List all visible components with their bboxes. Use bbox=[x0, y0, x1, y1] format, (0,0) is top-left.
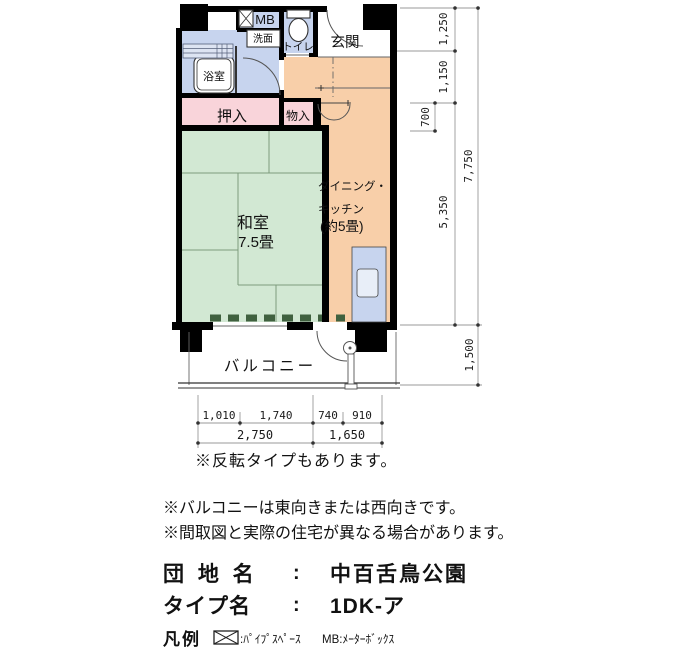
toilet-tank bbox=[287, 10, 310, 18]
label-dk-2: キッチン bbox=[318, 203, 364, 216]
pillar-top-left bbox=[180, 4, 208, 31]
note-disclaimer: ※間取図と実際の住宅が異なる場合があります。 bbox=[163, 524, 513, 542]
type-name-value: 1DK-ア bbox=[330, 595, 405, 618]
kitchen-sink bbox=[357, 269, 378, 297]
dim-1740: 1,740 bbox=[259, 409, 292, 422]
label-mb: MB bbox=[255, 12, 275, 27]
estate-name-value: 中百舌鳥公園 bbox=[330, 562, 468, 586]
dim-1650: 1,650 bbox=[329, 428, 365, 442]
dimensions-bottom: 1,010 1,740 740 910 2,750 1,650 bbox=[196, 395, 384, 448]
dim-7750: 7,750 bbox=[462, 149, 475, 182]
label-washstand: 洗面 bbox=[253, 33, 273, 45]
label-monoire: 物入 bbox=[286, 109, 310, 123]
pillar-bottom-right bbox=[355, 330, 387, 352]
label-dk-3: (約5畳) bbox=[320, 219, 364, 234]
notes-block: ※反転タイプもあります。 ※バルコニーは東向きまたは西向きです。 ※間取図と実際… bbox=[163, 452, 513, 542]
wall-bottom-right bbox=[347, 322, 397, 330]
dim-1250: 1,250 bbox=[437, 12, 450, 45]
legend-pipe-space: :ﾊﾟｲﾌﾟｽﾍﾟｰｽ bbox=[240, 633, 301, 646]
label-dk-1: ダイニング・ bbox=[318, 179, 387, 193]
label-balcony: バルコニー bbox=[224, 358, 316, 375]
dim-1010: 1,010 bbox=[202, 409, 235, 422]
wall-bottom-mid bbox=[287, 322, 313, 330]
type-colon: : bbox=[293, 594, 300, 616]
dimensions-right: 1,250 1,150 700 5,350 7,750 1,500 bbox=[397, 6, 482, 387]
floor-plan-drawing: MB 洗面 トイレ 玄関 浴室 押入 物入 和室 7.5畳 ダイニング・ キッチ… bbox=[0, 0, 700, 650]
wall-right bbox=[390, 28, 397, 322]
floor-plan-page: MB 洗面 トイレ 玄関 浴室 押入 物入 和室 7.5畳 ダイニング・ キッチ… bbox=[0, 0, 700, 650]
label-washitsu: 和室 bbox=[237, 214, 269, 232]
laundry-shelf bbox=[183, 44, 233, 58]
dim-910: 910 bbox=[352, 409, 372, 422]
dim-700: 700 bbox=[419, 107, 432, 127]
wall-washroom-oshiire bbox=[176, 93, 283, 98]
label-washitsu-size: 7.5畳 bbox=[238, 234, 274, 251]
property-info: 団 地 名 : 中百舌鳥公園 タイプ名 : 1DK-ア bbox=[163, 562, 468, 618]
balcony-partition bbox=[348, 354, 354, 385]
wall-bottom-left bbox=[172, 322, 213, 330]
dim-2750: 2,750 bbox=[237, 428, 273, 442]
legend-meter-box: MB:ﾒｰﾀｰﾎﾞｯｸｽ bbox=[322, 633, 394, 646]
balcony-door-arc bbox=[317, 331, 347, 361]
label-oshiire: 押入 bbox=[217, 108, 247, 125]
toilet-bowl bbox=[289, 19, 308, 42]
label-toilet: トイレ bbox=[282, 41, 314, 53]
wall-left bbox=[176, 28, 182, 322]
note-balcony-facing: ※バルコニーは東向きまたは西向きです。 bbox=[163, 499, 465, 517]
dim-5350: 5,350 bbox=[437, 195, 450, 228]
pillar-bottom-left bbox=[180, 330, 202, 352]
note-reverse-type: ※反転タイプもあります。 bbox=[195, 452, 397, 470]
label-bath: 浴室 bbox=[203, 69, 225, 83]
estate-colon: : bbox=[293, 562, 300, 584]
dim-1500: 1,500 bbox=[463, 338, 476, 371]
dim-740: 740 bbox=[318, 409, 338, 422]
type-name-label: タイプ名 bbox=[163, 594, 251, 618]
wall-oshiire-washitsu bbox=[176, 125, 329, 131]
legend: 凡例 :ﾊﾟｲﾌﾟｽﾍﾟｰｽ MB:ﾒｰﾀｰﾎﾞｯｸｽ bbox=[163, 629, 394, 649]
pillar-top-right bbox=[363, 4, 397, 30]
legend-title: 凡例 bbox=[163, 629, 201, 649]
estate-name-label: 団 地 名 bbox=[163, 562, 258, 586]
label-entrance: 玄関 bbox=[331, 34, 360, 51]
dim-1150: 1,150 bbox=[437, 60, 450, 93]
